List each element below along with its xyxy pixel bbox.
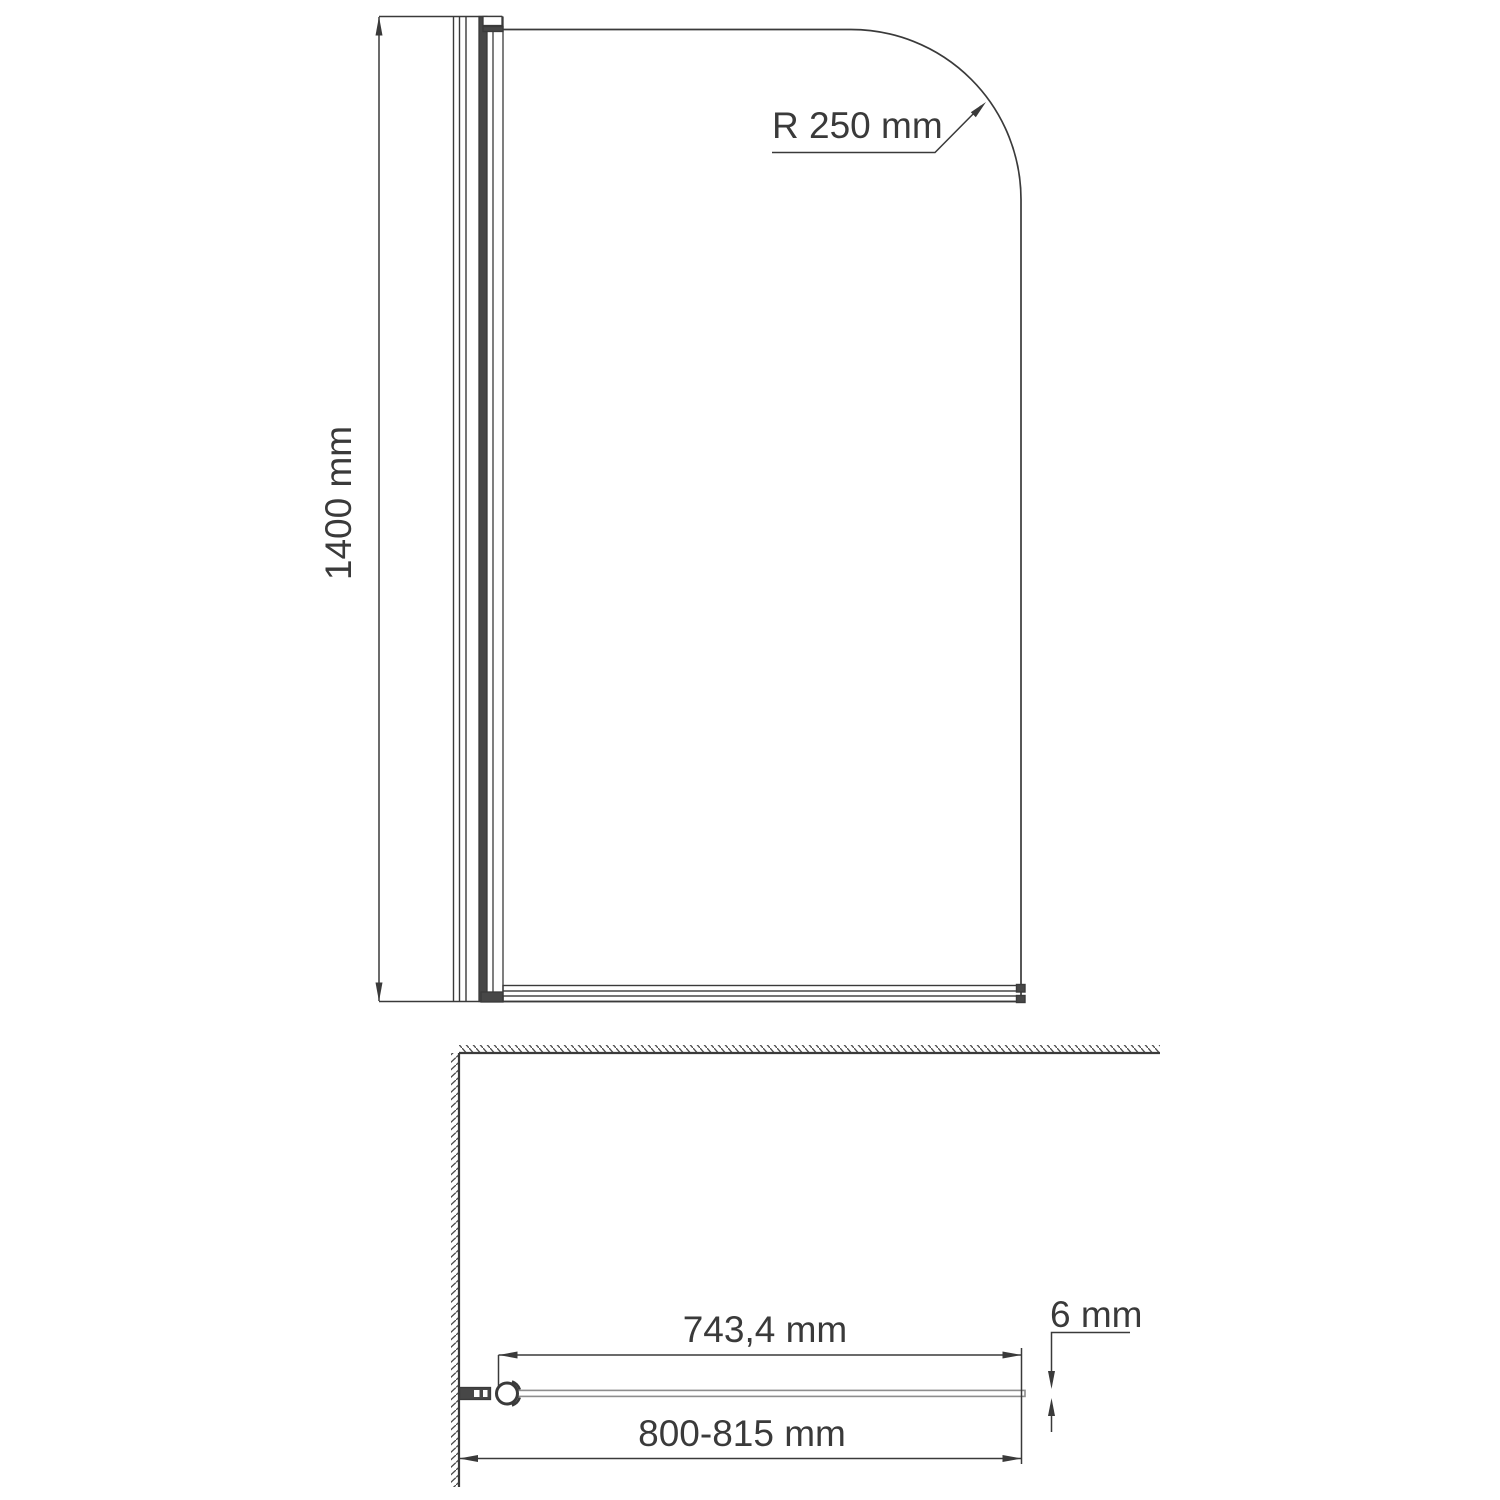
- bracket-slot: [474, 1390, 480, 1397]
- wall-profile: [454, 17, 467, 1002]
- height-dimension-label: 1400 mm: [318, 426, 359, 580]
- arrowhead-down: [376, 983, 383, 1002]
- pivot-circle: [497, 1383, 518, 1404]
- bracket-slot: [483, 1390, 488, 1397]
- overall-width-dimension: 800-815 mm: [459, 1413, 1022, 1462]
- arrowhead-left: [459, 1455, 478, 1462]
- pivot-cap-top: [483, 27, 503, 32]
- technical-drawing-page: 1400 mm R 250 mm: [0, 0, 1500, 1500]
- hinge-profile-bar: [479, 17, 487, 1002]
- arrowhead-left: [499, 1352, 518, 1359]
- glass-panel-outline: [503, 30, 1021, 1002]
- arrowhead-up: [376, 17, 383, 36]
- thickness-label: 6 mm: [1050, 1294, 1143, 1335]
- rail-end-cap-lower: [1017, 996, 1026, 1003]
- arrowhead-right: [1003, 1352, 1022, 1359]
- thickness-dimension: 6 mm: [1048, 1294, 1143, 1432]
- plan-view: 743,4 mm 6 mm 800-815 mm: [451, 1045, 1160, 1487]
- technical-drawing-canvas: 1400 mm R 250 mm: [0, 0, 1500, 1500]
- hinge-pivot: [460, 1382, 520, 1406]
- pivot-cap-bottom: [481, 992, 503, 1002]
- overall-width-label: 800-815 mm: [638, 1413, 846, 1454]
- height-dimension: 1400 mm: [318, 17, 503, 1002]
- glass-width-label: 743,4 mm: [683, 1309, 848, 1350]
- wall-hatch-left: [451, 1053, 459, 1487]
- hinge-profile: [479, 17, 503, 1003]
- bottom-rail: [503, 985, 1025, 1003]
- rail-end-cap-upper: [1017, 985, 1026, 993]
- rail-upper: [503, 986, 1017, 992]
- arrowhead-right: [1003, 1455, 1022, 1462]
- pivot-bracket-top: [483, 17, 502, 26]
- glass-panel-plan: [517, 1390, 1025, 1396]
- arrowhead-down: [1048, 1371, 1055, 1389]
- front-view: 1400 mm R 250 mm: [318, 17, 1025, 1003]
- thickness-leader-line: [1052, 1333, 1131, 1372]
- wall-hatch-top: [459, 1045, 1160, 1053]
- radius-label: R 250 mm: [772, 105, 943, 146]
- radius-callout: R 250 mm: [772, 102, 986, 153]
